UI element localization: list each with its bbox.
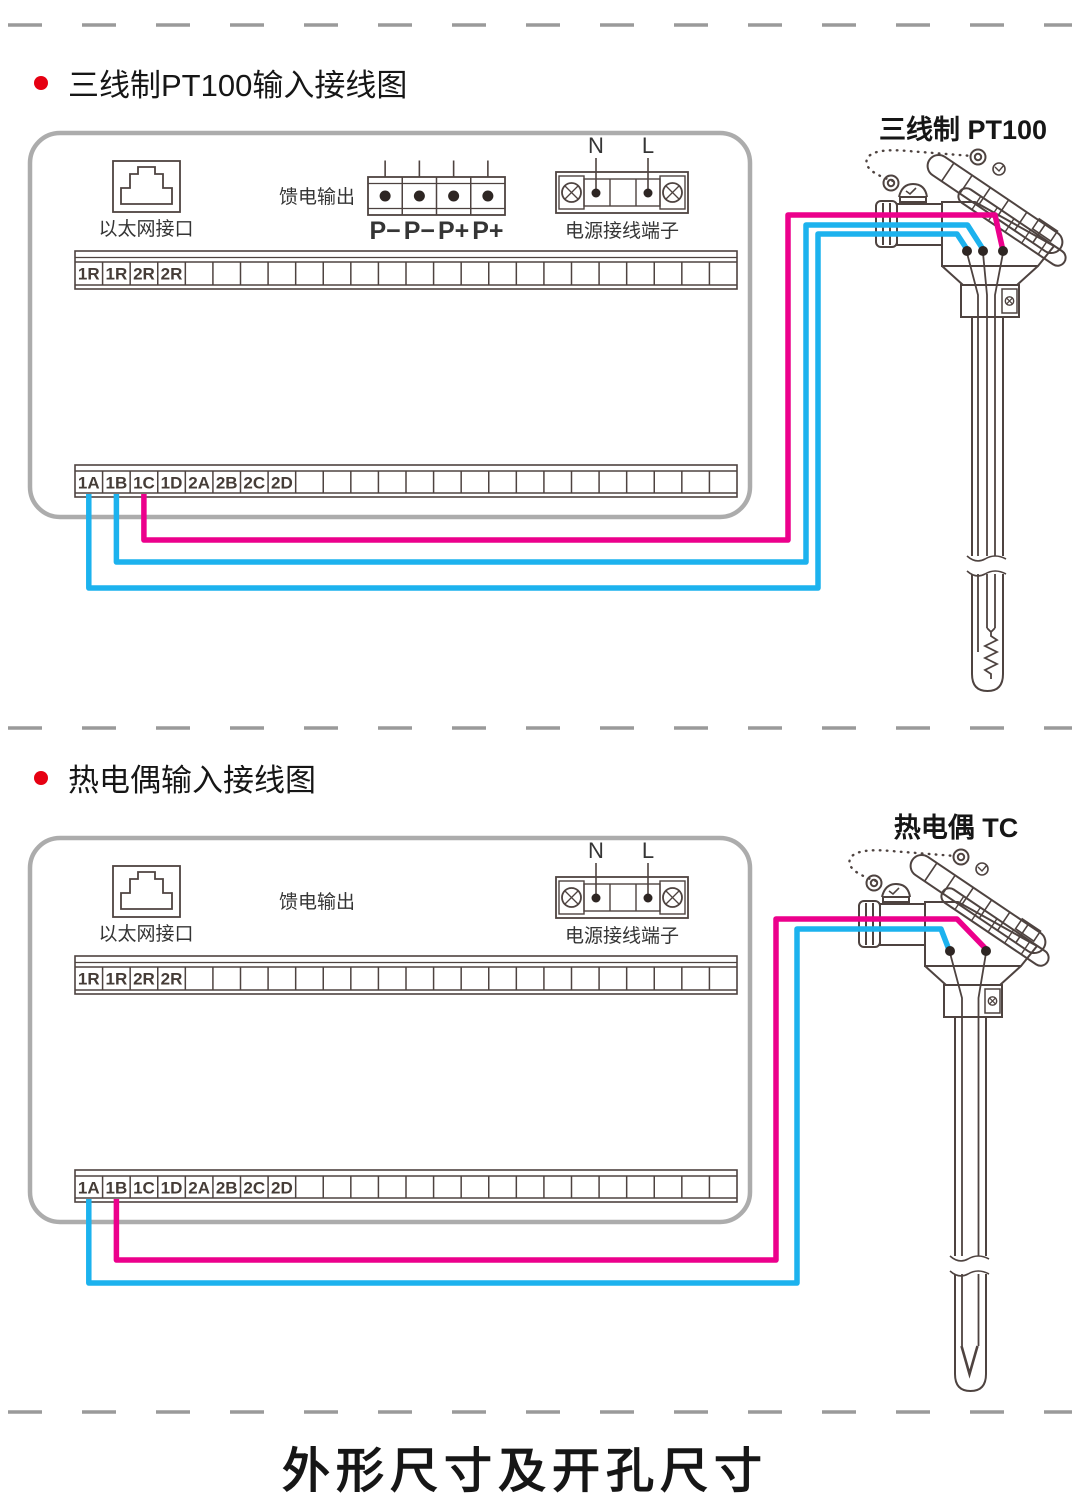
power-l-label: L — [642, 838, 654, 863]
terminal-cell-label: 2A — [188, 1179, 210, 1198]
terminal-cell-label: 2B — [216, 1179, 238, 1198]
terminal-cell-label: 1R — [78, 970, 100, 989]
feed-terminal-dot — [448, 191, 459, 202]
power-n-label: N — [588, 133, 604, 158]
sensor-terminal-dot — [945, 946, 955, 956]
sensor-terminal-dot — [962, 246, 972, 256]
terminal-cell-label: 2C — [243, 1179, 265, 1198]
feed-terminal-dot — [380, 191, 391, 202]
sensor-terminal-dot — [978, 246, 988, 256]
terminal-strip-input: 1A1B1C1D2A2B2C2D — [75, 465, 737, 497]
power-terminal-block — [556, 863, 688, 918]
section-thermocouple: 热电偶输入接线图 以太网接口 馈电输出 P−P−P+P+ — [30, 763, 1060, 1508]
terminal-cell-label: 2B — [216, 474, 238, 493]
feed-terminal-dot — [414, 191, 425, 202]
section-pt100: 三线制PT100输入接线图 以太网接口 馈电输出 P−P−P+P+ — [30, 68, 1077, 691]
terminal-cell-label: 1C — [133, 1179, 155, 1198]
sensor-terminal-dot — [998, 246, 1008, 256]
sensor-title: 三线制 PT100 — [879, 115, 1047, 145]
terminal-cell-label: 1C — [133, 474, 155, 493]
power-l-label: L — [642, 133, 654, 158]
wire-cyan-1a — [89, 929, 949, 1283]
terminal-strip-relay: 1R1R2R2R — [75, 251, 737, 289]
terminal-cell-label: 1B — [106, 474, 128, 493]
terminal-cell-label: 1R — [106, 970, 128, 989]
wire-cyan-1b — [116, 225, 982, 562]
tc-head — [849, 850, 1059, 1018]
terminal-cell-label: 2R — [133, 265, 155, 284]
terminal-cell-label: 2D — [271, 1179, 293, 1198]
terminal-cell-label: 2R — [161, 970, 183, 989]
wire-magenta-1b — [116, 919, 985, 1260]
terminal-cell-label: 2C — [243, 474, 265, 493]
power-n-label: N — [588, 838, 604, 863]
terminal-cell-label: 1D — [161, 1179, 183, 1198]
sensor-title: 热电偶 TC — [894, 813, 1019, 843]
tc-junction-icon — [962, 1346, 978, 1374]
feed-terminal-label: P+ — [472, 217, 503, 245]
section-title: 热电偶输入接线图 — [68, 763, 316, 798]
ethernet-label: 以太网接口 — [98, 218, 193, 240]
terminal-cell-label: 2R — [161, 265, 183, 284]
feed-terminal-label: P+ — [438, 217, 469, 245]
power-terminal-block — [556, 158, 688, 213]
power-terminal-dot — [644, 894, 653, 903]
sensor-terminal-dot — [981, 946, 991, 956]
terminal-strip-relay: 1R1R2R2R — [75, 956, 737, 994]
terminal-cell-label: 1D — [161, 474, 183, 493]
feed-terminal-dot — [482, 191, 493, 202]
ethernet-label: 以太网接口 — [98, 923, 193, 945]
feed-output-block: P−P−P+P+ — [368, 161, 505, 246]
rtd-element-icon — [985, 628, 997, 679]
terminal-cell-label: 2A — [188, 474, 210, 493]
terminal-cell-label: 1R — [78, 265, 100, 284]
power-terminal-label: 电源接线端子 — [565, 925, 679, 947]
section-title: 三线制PT100输入接线图 — [68, 68, 407, 103]
tc-probe — [947, 1017, 993, 1391]
wires-pt100 — [89, 215, 1003, 588]
feed-terminal-label: P− — [369, 217, 400, 245]
power-terminal-dot — [592, 894, 601, 903]
feed-output-label: 馈电输出 — [279, 891, 355, 913]
terminal-cell-label: 1B — [106, 1179, 128, 1198]
page: 三线制PT100输入接线图 以太网接口 馈电输出 P−P−P+P+ — [0, 0, 1080, 1508]
wires-tc — [89, 919, 986, 1283]
power-terminal-dot — [644, 189, 653, 198]
bullet-icon — [34, 771, 48, 785]
terminal-cell-label: 1A — [78, 474, 100, 493]
panel-outline — [30, 838, 750, 1222]
terminal-cell-label: 2R — [133, 970, 155, 989]
feed-output-label: 馈电输出 — [279, 186, 355, 208]
power-terminal-dot — [592, 189, 601, 198]
bullet-icon — [34, 76, 48, 90]
feed-terminal-label: P− — [404, 217, 435, 245]
wire-cyan-1a — [89, 234, 967, 588]
terminal-cell-label: 1R — [106, 265, 128, 284]
terminal-cell-label: 2D — [271, 474, 293, 493]
terminal-strip-input: 1A1B1C1D2A2B2C2D — [75, 1170, 737, 1202]
panel-outline — [30, 133, 750, 517]
terminal-cell-label: 1A — [78, 1179, 100, 1198]
power-terminal-label: 电源接线端子 — [565, 220, 679, 242]
footer-heading: 外形尺寸及开孔尺寸 — [282, 1445, 768, 1498]
